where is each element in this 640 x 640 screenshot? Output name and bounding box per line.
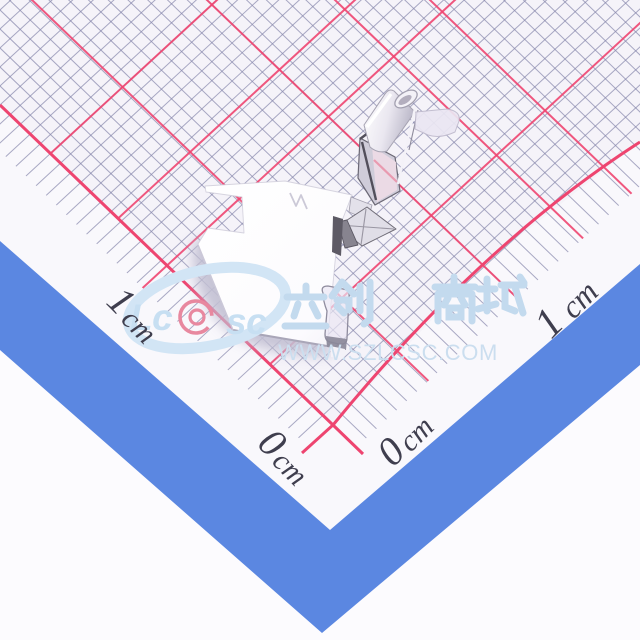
svg-text:WWW.SZLCSC.COM: WWW.SZLCSC.COM bbox=[278, 340, 498, 365]
svg-text:sc: sc bbox=[226, 301, 267, 342]
